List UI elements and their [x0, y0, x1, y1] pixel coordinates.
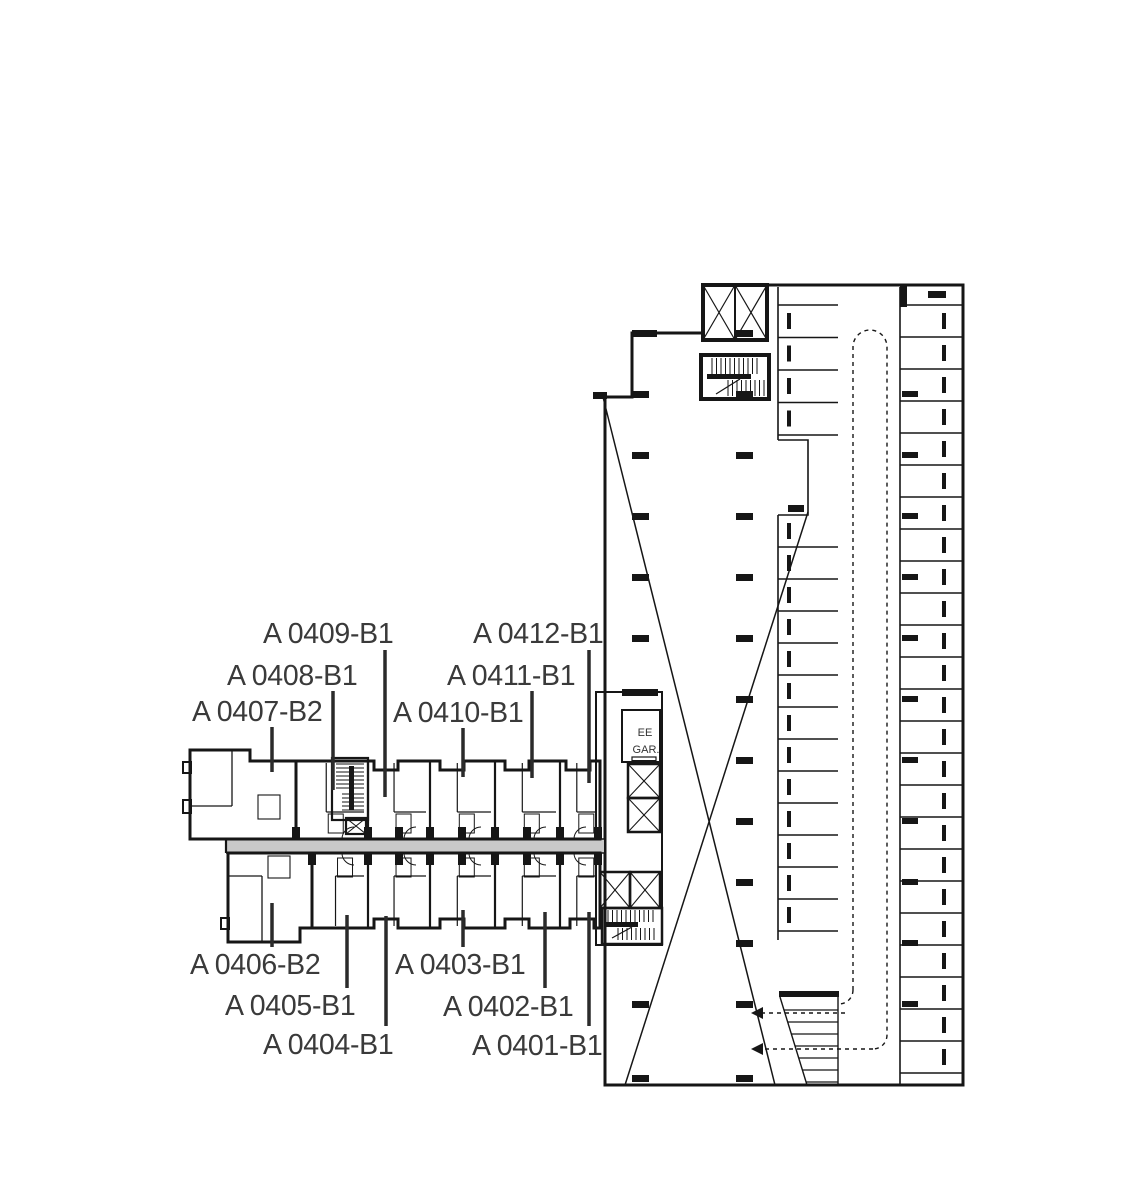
door-arc [469, 853, 481, 865]
unit-label-A-0410-B1: A 0410-B1 [393, 697, 523, 729]
stall-tick [942, 377, 946, 393]
stall-column-mark [902, 818, 918, 824]
stall-tick [942, 473, 946, 489]
core-elevators [600, 764, 660, 908]
column-mark [632, 513, 649, 520]
stall-column-mark [788, 505, 804, 512]
stall-tick [942, 857, 946, 873]
stall-tick [942, 793, 946, 809]
stall-tick [787, 411, 791, 427]
unit-label-A-0406-B2: A 0406-B2 [190, 949, 320, 981]
apartment-wing [183, 750, 604, 942]
stall-tick [787, 811, 791, 827]
stall-tick [787, 651, 791, 667]
stall-tick [942, 825, 946, 841]
stall-column-mark [902, 574, 918, 580]
floor-plan-svg: EE GAR. [0, 0, 1135, 1200]
parking-stalls [632, 305, 963, 1082]
stall-column-mark [902, 452, 918, 458]
corridor-wall-stub [292, 827, 300, 839]
column-mark [632, 391, 649, 398]
units-strip-top [296, 761, 600, 839]
stall-tick [787, 587, 791, 603]
stall-tick [787, 715, 791, 731]
stall-tick [942, 537, 946, 553]
unit-label-A-0401-B1: A 0401-B1 [472, 1030, 602, 1062]
unit-label-A-0407-B2: A 0407-B2 [192, 696, 322, 728]
stall-tick [942, 313, 946, 329]
unit-label-A-0409-B1: A 0409-B1 [263, 618, 393, 650]
column-mark [736, 818, 753, 825]
stall-tick [787, 683, 791, 699]
stall-column-mark [902, 879, 918, 885]
stall-tick [942, 921, 946, 937]
column-mark [632, 1075, 649, 1082]
stall-tick [787, 619, 791, 635]
corridor-wall-stub [426, 827, 434, 839]
unit-label-A-0412-B1: A 0412-B1 [473, 618, 603, 650]
stall-column-mark [902, 391, 918, 397]
stall-tick [787, 907, 791, 923]
door-arc [404, 853, 416, 865]
stall-tick [787, 378, 791, 394]
stall-tick [942, 505, 946, 521]
drive-lane-dashed [853, 330, 887, 1035]
column-mark [632, 452, 649, 459]
unit-label-A-0405-B1: A 0405-B1 [225, 990, 355, 1022]
column-mark [736, 1001, 753, 1008]
garage-stairwell [701, 355, 769, 399]
stall-tick [942, 409, 946, 425]
wing-stairwell [332, 758, 368, 834]
corridor-wall-stub [594, 827, 602, 839]
corridor-wall-stub [308, 853, 316, 865]
stall-tick [942, 889, 946, 905]
unit-label-A-0411-B1: A 0411-B1 [447, 660, 575, 692]
corridor-wall-stub [458, 827, 466, 839]
column-mark [736, 696, 753, 703]
column-mark [736, 757, 753, 764]
corridor-wall-stub [395, 827, 403, 839]
corridor-wall-stub [364, 853, 372, 865]
stall-tick [787, 875, 791, 891]
unit-label-A-0404-B1: A 0404-B1 [263, 1029, 393, 1061]
door-arc [574, 853, 586, 865]
garage-ramp [779, 991, 839, 1085]
stall-tick [942, 345, 946, 361]
corridor-wall-stub [523, 853, 531, 865]
column-mark [632, 1001, 649, 1008]
column-mark [736, 452, 753, 459]
bathroom [579, 814, 594, 833]
stall-tick [787, 346, 791, 362]
corridor [226, 839, 604, 853]
stall-column-mark [902, 635, 918, 641]
column-mark [736, 574, 753, 581]
stall-tick [942, 953, 946, 969]
stall-tick [787, 779, 791, 795]
stall-tick [787, 843, 791, 859]
unit-b2-bottom [228, 853, 312, 942]
garage-outline [605, 285, 963, 1085]
unit-label-A-0403-B1: A 0403-B1 [395, 949, 525, 981]
unit-label-A-0402-B1: A 0402-B1 [443, 991, 573, 1023]
bathroom [579, 858, 594, 877]
corridor-wall-stub [556, 853, 564, 865]
stall-tick [942, 569, 946, 585]
gar-label: GAR. [633, 744, 660, 756]
stall-column-mark [902, 696, 918, 702]
bathroom [328, 814, 343, 833]
stall-tick [942, 697, 946, 713]
corridor-wall-stub [556, 827, 564, 839]
parking-garage [593, 285, 963, 1085]
corridor-wall-stub [491, 827, 499, 839]
stall-tick [942, 633, 946, 649]
column-mark [736, 635, 753, 642]
stall-column-mark [902, 940, 918, 946]
corridor-wall-stub [491, 853, 499, 865]
ee-label: EE [638, 727, 653, 739]
stall-tick [942, 1049, 946, 1065]
corridor-wall-stub [458, 853, 466, 865]
door-arc [534, 827, 546, 839]
ramp-arrow-2 [751, 1043, 763, 1055]
stall-column-mark [902, 513, 918, 519]
unit-label-A-0408-B1: A 0408-B1 [227, 660, 357, 692]
stall-tick [942, 729, 946, 745]
garage-elevator-shaft [703, 285, 767, 340]
corridor-wall-stub [523, 827, 531, 839]
stall-tick [942, 601, 946, 617]
corridor-wall-stub [426, 853, 434, 865]
corridor-wall-stub [364, 827, 372, 839]
floor-plan-canvas: EE GAR. [0, 0, 1135, 1200]
stall-tick [942, 1017, 946, 1033]
ramp-arrow-1 [751, 1007, 763, 1019]
column-mark [736, 513, 753, 520]
stall-column-mark [902, 757, 918, 763]
column-mark [632, 574, 649, 581]
door-arc [534, 853, 546, 865]
door-arc [469, 827, 481, 839]
corridor-wall-stub [594, 853, 602, 865]
stall-tick [942, 985, 946, 1001]
column-mark [632, 635, 649, 642]
aisle-diagonal-1 [603, 397, 775, 1085]
stall-tick [942, 665, 946, 681]
stall-tick [787, 313, 791, 329]
column-mark [736, 1075, 753, 1082]
stall-column-mark [902, 1001, 918, 1007]
stall-tick [942, 441, 946, 457]
corridor-wall-stub [395, 853, 403, 865]
stall-tick [787, 747, 791, 763]
core-stairwell [602, 908, 662, 944]
stall-tick [942, 761, 946, 777]
column-mark [736, 879, 753, 886]
stall-tick [787, 523, 791, 539]
